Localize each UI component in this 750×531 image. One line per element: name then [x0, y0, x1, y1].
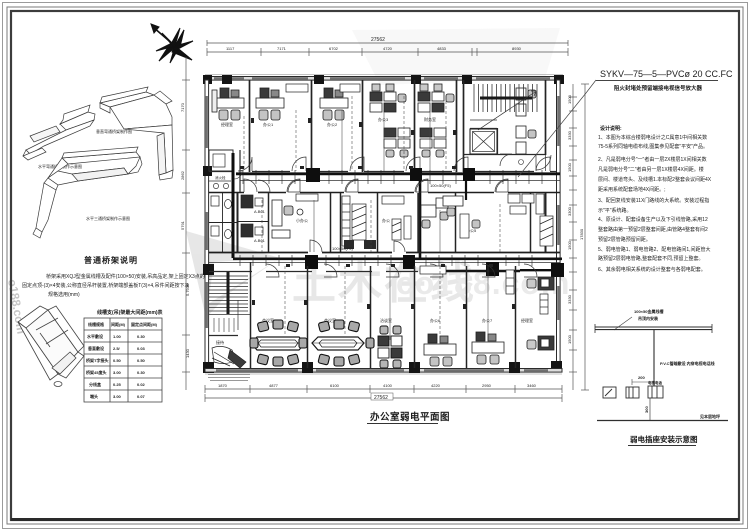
svg-text:垂直敷设: 垂直敷设 [88, 345, 104, 351]
svg-text:1、本图为本综合楼弱电设计之C属意1中间相关数: 1、本图为本综合楼弱电设计之C属意1中间相关数 [598, 134, 707, 141]
svg-text:4、原设计、配套设备生产以及下引线管路,采用12: 4、原设计、配套设备生产以及下引线管路,采用12 [598, 216, 708, 223]
svg-text:100×50(F5): 100×50(F5) [332, 246, 353, 251]
svg-text:示"平"系统路。: 示"平"系统路。 [598, 207, 632, 214]
svg-text:预留2层管路预留间距。: 预留2层管路预留间距。 [598, 236, 651, 243]
svg-text:3、配回复线安装11X门路线的大系统。安装过程指: 3、配回复线安装11X门路线的大系统。安装过程指 [598, 197, 709, 204]
svg-text:桥架T字接头: 桥架T字接头 [86, 357, 108, 363]
svg-text:2.5/: 2.5/ [113, 346, 121, 351]
svg-text:2、凡是弱电分号"一"者由一层2X楼层1X间相关数: 2、凡是弱电分号"一"者由一层2X楼层1X间相关数 [598, 156, 707, 163]
svg-text:接待: 接待 [216, 339, 224, 345]
svg-text:1500: 1500 [567, 334, 572, 344]
svg-text:见本层地坪: 见本层地坪 [700, 413, 720, 419]
svg-text:0.30: 0.30 [137, 334, 146, 339]
svg-text:水平三通桥架制作示意图: 水平三通桥架制作示意图 [86, 215, 130, 221]
svg-text:端头: 端头 [90, 393, 98, 399]
svg-text:4100: 4100 [383, 383, 393, 388]
svg-text:17830: 17830 [579, 228, 584, 240]
svg-text:整套路由第一预留2层整套间距,由管路4整套有间2: 整套路由第一预留2层整套间距,由管路4整套有间2 [598, 226, 708, 233]
svg-text:路预留2层弱电管路,整套配套不同,预留上整套。: 路预留2层弱电管路,整套配套不同,预留上整套。 [598, 255, 704, 262]
svg-text:0.30: 0.30 [137, 370, 146, 375]
svg-text:5.7930: 5.7930 [185, 283, 190, 296]
svg-text:SYKV—75—5—PVCø 20 CC.FC: SYKV—75—5—PVCø 20 CC.FC [600, 69, 733, 79]
svg-text:4720: 4720 [383, 46, 393, 51]
svg-text:100×50金属线槽: 100×50金属线槽 [634, 308, 663, 314]
svg-text:线槽支(吊)架最大间距(mm)表: 线槽支(吊)架最大间距(mm)表 [97, 309, 164, 316]
svg-text:间距(M): 间距(M) [111, 321, 126, 327]
svg-text:办公3: 办公3 [378, 116, 389, 122]
svg-text:办公7: 办公7 [482, 317, 493, 323]
svg-text:凡是弱电分号"二"者由另一层1X楼层4X间距。楼: 凡是弱电分号"二"者由另一层1X楼层4X间距。楼 [598, 166, 704, 173]
svg-text:3330: 3330 [567, 294, 572, 304]
svg-text:经理室: 经理室 [521, 317, 533, 323]
svg-text:27562: 27562 [374, 395, 388, 401]
svg-text:6100: 6100 [330, 383, 340, 388]
svg-text:垂直弯通桥架制作图: 垂直弯通桥架制作图 [96, 128, 132, 134]
svg-text:普通桥架说明: 普通桥架说明 [84, 255, 138, 265]
svg-text:27562: 27562 [371, 37, 385, 43]
svg-text:3.00: 3.00 [113, 394, 122, 399]
svg-text:1500: 1500 [567, 162, 572, 172]
svg-text:A.B01: A.B01 [254, 238, 266, 243]
svg-text:A.B01: A.B01 [254, 209, 266, 214]
svg-text:6702: 6702 [329, 46, 339, 51]
svg-text:1430: 1430 [185, 348, 190, 358]
svg-text:2862: 2862 [180, 170, 185, 180]
svg-text:层间、楼道弯头、及线槽1.本标配2整套会议间距4X: 层间、楼道弯头、及线槽1.本标配2整套会议间距4X [598, 176, 712, 183]
svg-text:线槽规格: 线槽规格 [88, 321, 105, 327]
svg-text:办公1: 办公1 [263, 121, 274, 127]
svg-text:经理室: 经理室 [221, 121, 233, 127]
svg-text:3330: 3330 [567, 130, 572, 140]
svg-text:电视电话: 电视电话 [648, 380, 662, 385]
svg-text:100×50(F5): 100×50(F5) [430, 183, 451, 188]
svg-text:200: 200 [638, 375, 645, 380]
svg-text:办公2: 办公2 [327, 121, 338, 127]
svg-text:距采用系统配套场地4X间距。;: 距采用系统配套场地4X间距。; [598, 186, 666, 193]
svg-text:4220: 4220 [431, 383, 441, 388]
svg-text:1.00: 1.00 [113, 334, 122, 339]
svg-text:规格选用(mm): 规格选用(mm) [48, 291, 80, 298]
svg-text:3.00: 3.00 [113, 370, 122, 375]
svg-text:吊顶内安装: 吊顶内安装 [638, 315, 658, 321]
svg-text:消火栓: 消火栓 [215, 175, 226, 180]
svg-text:0.25: 0.25 [113, 382, 122, 387]
svg-text:7171: 7171 [277, 46, 287, 51]
svg-text:0.07: 0.07 [137, 394, 146, 399]
svg-text:1500: 1500 [567, 94, 572, 104]
svg-text:1500: 1500 [567, 240, 572, 250]
svg-text:1117: 1117 [226, 46, 235, 51]
svg-text:固定点间距(M): 固定点间距(M) [131, 321, 158, 327]
svg-text:桥架采用XQJ型金属线槽及配件(100×50)安装,吊高品定: 桥架采用XQJ型金属线槽及配件(100×50)安装,吊高品定,架上固定X3点的 [46, 273, 205, 280]
svg-text:办公6: 办公6 [430, 317, 441, 323]
svg-text:75-5系列同轴电缆布线,图集参见配套"平安"产品。: 75-5系列同轴电缆布线,图集参见配套"平安"产品。 [598, 143, 708, 150]
svg-text:6、其余弱电相关系统的设计整套与各弱电配套。: 6、其余弱电相关系统的设计整套与各弱电配套。 [598, 266, 706, 273]
svg-text:0.02: 0.02 [137, 382, 146, 387]
svg-text:分线盒: 分线盒 [89, 381, 102, 387]
svg-text:8930: 8930 [512, 46, 522, 51]
svg-text:固定点顶-(3)×4安装,公称直径吊杆装置,桥架端部盖板T(: 固定点顶-(3)×4安装,公称直径吊杆装置,桥架端部盖板T(3)×4,吊件间距按… [22, 282, 190, 289]
svg-text:设计说明:: 设计说明: [600, 125, 622, 132]
svg-text:1870: 1870 [218, 383, 228, 388]
svg-text:阻火封堵处预留端接电视信号放大器: 阻火封堵处预留端接电视信号放大器 [614, 84, 703, 92]
svg-text:小办公: 小办公 [296, 217, 308, 223]
svg-text:3300: 3300 [567, 206, 572, 216]
svg-text:2950: 2950 [482, 383, 492, 388]
svg-text:办公室弱电平面图: 办公室弱电平面图 [370, 411, 450, 423]
svg-text:水平敷设: 水平敷设 [86, 333, 103, 339]
svg-text:5791: 5791 [180, 220, 185, 230]
svg-text:7170: 7170 [180, 102, 185, 112]
svg-text:桥架45度头: 桥架45度头 [86, 369, 106, 375]
svg-text:300: 300 [644, 406, 649, 413]
svg-text:3460: 3460 [527, 383, 537, 388]
svg-text:0.03: 0.03 [137, 346, 146, 351]
svg-text:P.V.C管暗敷设 内穿电视电话线: P.V.C管暗敷设 内穿电视电话线 [660, 360, 715, 366]
svg-text:4833: 4833 [437, 46, 447, 51]
svg-text:0.50: 0.50 [113, 358, 122, 363]
svg-text:0.50: 0.50 [137, 358, 146, 363]
svg-text:办公: 办公 [382, 217, 390, 223]
svg-text:弱电插座安装示意图: 弱电插座安装示意图 [630, 434, 698, 444]
svg-text:4877: 4877 [269, 383, 279, 388]
svg-text:5、弱电管路1、弱电管路2、配电管路间1,间距管大: 5、弱电管路1、弱电管路2、配电管路间1,间距管大 [598, 246, 711, 253]
